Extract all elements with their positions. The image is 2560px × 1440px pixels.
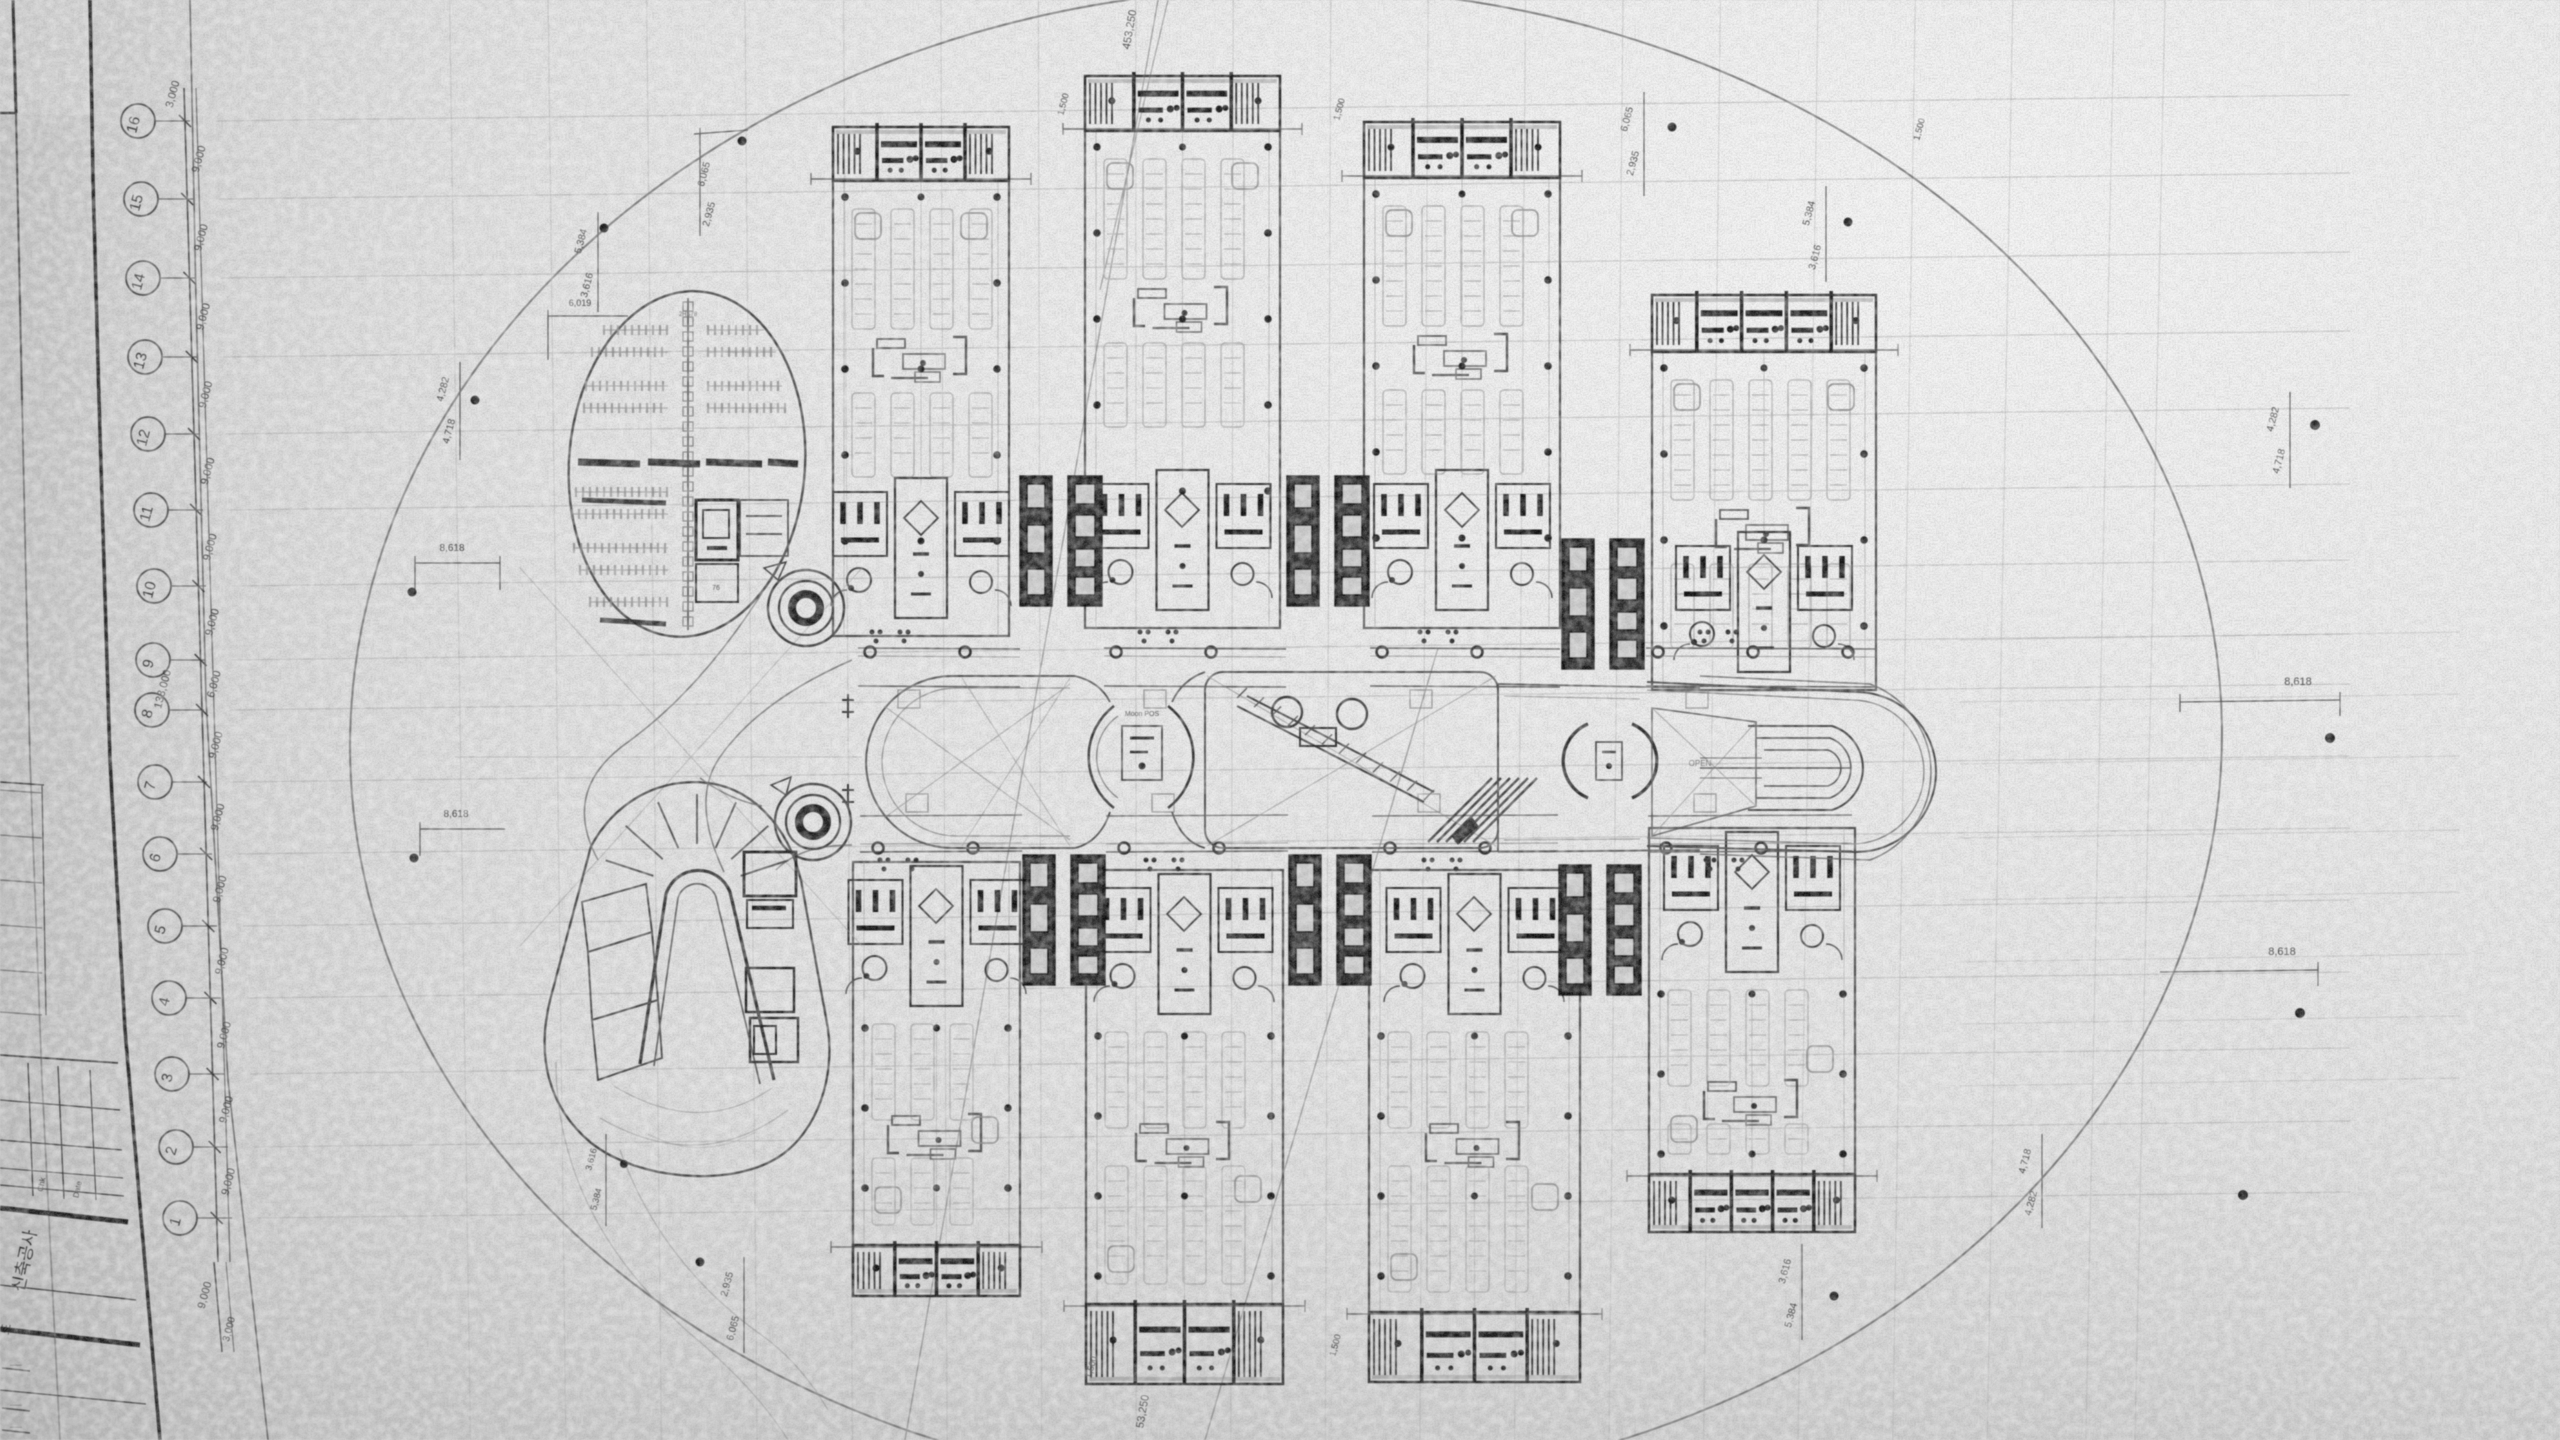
svg-text:2HS78: 2HS78 <box>679 312 698 318</box>
svg-text:8,618: 8,618 <box>2268 946 2296 958</box>
svg-text:8,618: 8,618 <box>439 543 464 554</box>
svg-text:8,618: 8,618 <box>2284 676 2312 688</box>
svg-text:8,618: 8,618 <box>443 809 468 820</box>
svg-text:___: ___ <box>9 1359 22 1366</box>
svg-text:Moon POS: Moon POS <box>1125 711 1160 718</box>
svg-text:OPEN: OPEN <box>1689 759 1712 768</box>
svg-text:76: 76 <box>712 585 720 592</box>
svg-text:___: ___ <box>9 1421 22 1428</box>
svg-text:6,019: 6,019 <box>569 298 592 308</box>
svg-text:___: ___ <box>9 1399 22 1406</box>
